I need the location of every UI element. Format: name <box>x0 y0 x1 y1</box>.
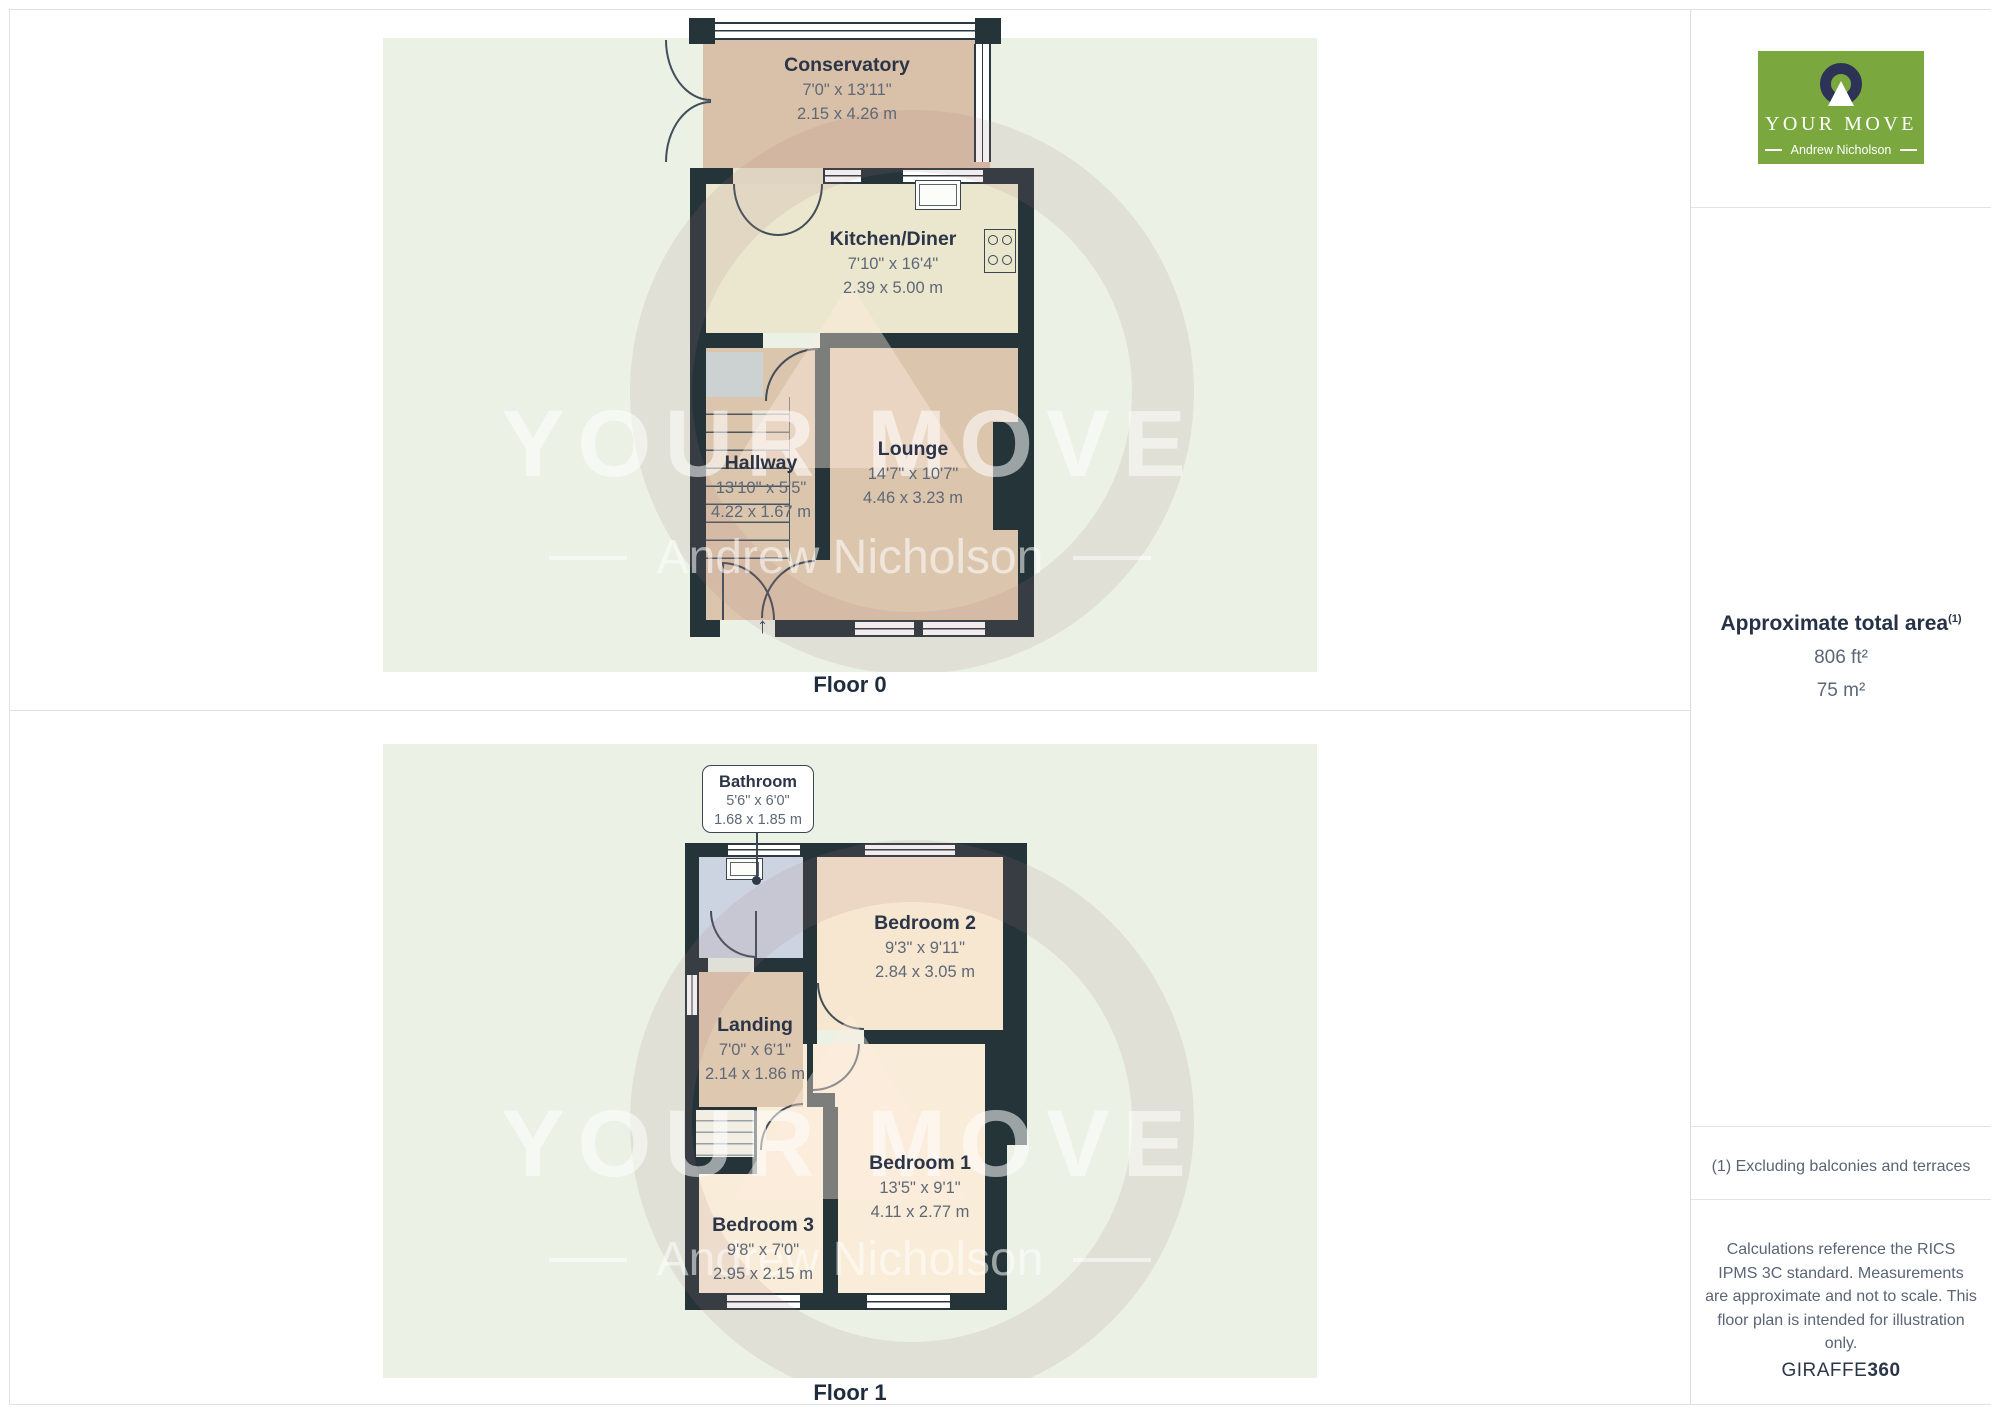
room-label-bedroom-2: Bedroom 2 9'3" x 9'11" 2.84 x 3.05 m <box>874 912 976 983</box>
wall <box>823 1107 838 1293</box>
window <box>974 44 991 162</box>
room-dim-metric: 2.84 x 3.05 m <box>874 961 976 983</box>
room-dim-metric: 1.68 x 1.85 m <box>703 811 813 830</box>
wall <box>706 333 763 348</box>
yourmove-logo: YOUR MOVE Andrew Nicholson <box>1758 51 1924 164</box>
room-dim-metric: 4.22 x 1.67 m <box>711 501 811 523</box>
room-dim-imperial: 14'7" x 10'7" <box>863 463 963 485</box>
wall <box>985 1030 1027 1145</box>
room-dim-imperial: 7'10" x 16'4" <box>830 253 957 275</box>
room-dim-imperial: 9'3" x 9'11" <box>874 937 976 959</box>
stairs <box>693 1107 757 1160</box>
hob-ring <box>988 235 998 245</box>
logo-brand-text: YOUR MOVE <box>1758 113 1924 136</box>
wall <box>803 857 817 1044</box>
room-name: Hallway <box>711 452 811 475</box>
chimney-breast <box>993 422 1018 530</box>
giraffe-text: GIRAFFE <box>1781 1360 1867 1381</box>
total-area-heading-text: Approximate total area <box>1720 612 1948 635</box>
sidebar-divider <box>1691 1126 1991 1127</box>
giraffe360-brand: GIRAFFE360 <box>1691 1360 1991 1382</box>
wall <box>685 1160 757 1174</box>
floor1-label: Floor 1 <box>383 1380 1317 1406</box>
total-area-imperial: 806 ft² <box>1691 647 1991 669</box>
wall <box>950 1293 1007 1310</box>
door-leaf <box>722 562 724 620</box>
wall <box>1003 857 1027 1030</box>
room-name: Bedroom 1 <box>869 1152 971 1175</box>
room-dim-metric: 4.11 x 2.77 m <box>869 1201 971 1223</box>
logo-agent-name: Andrew Nicholson <box>1791 143 1892 157</box>
logo-dash <box>1765 149 1782 151</box>
room-dim-metric: 2.95 x 2.15 m <box>712 1263 814 1285</box>
total-area-heading: Approximate total area(1) <box>1691 612 1991 636</box>
wall <box>800 1293 867 1310</box>
window <box>865 843 955 857</box>
wall <box>820 333 1034 348</box>
window <box>867 1293 950 1310</box>
wall-corner-post <box>975 18 1001 44</box>
wall <box>775 620 855 637</box>
door-arc <box>665 40 711 101</box>
callout-leader <box>756 833 758 878</box>
entrance-arrow-icon: ↑ <box>757 615 768 637</box>
room-dim-imperial: 13'5" x 9'1" <box>869 1177 971 1199</box>
bathroom-callout: Bathroom 5'6" x 6'0" 1.68 x 1.85 m <box>702 765 814 833</box>
wall <box>1018 184 1034 637</box>
logo-triangle-icon <box>1828 81 1854 106</box>
door-threshold <box>733 168 823 184</box>
floor0-panel: ↑ YOUR MOVE Andrew Nicholson Conservator… <box>383 38 1317 672</box>
room-name: Lounge <box>863 438 963 461</box>
wall <box>685 857 699 1310</box>
room-dim-metric: 4.46 x 3.23 m <box>863 487 963 509</box>
wall <box>699 958 708 972</box>
window <box>727 1293 800 1310</box>
wall <box>803 1030 817 1044</box>
room-dim-imperial: 9'8" x 7'0" <box>712 1239 814 1261</box>
floor1-panel: Bathroom 5'6" x 6'0" 1.68 x 1.85 m YOUR … <box>383 744 1317 1378</box>
area-footnote: (1) Excluding balconies and terraces <box>1691 1158 1991 1176</box>
room-name: Bedroom 2 <box>874 912 976 935</box>
hob-ring <box>1002 255 1012 265</box>
floorplan-page: ↑ YOUR MOVE Andrew Nicholson Conservator… <box>0 0 2000 1414</box>
room-name: Conservatory <box>784 54 910 77</box>
total-area-metric: 75 m² <box>1691 680 1991 702</box>
room-dim-metric: 2.14 x 1.86 m <box>705 1063 805 1085</box>
room-label-kitchen-diner: Kitchen/Diner 7'10" x 16'4" 2.39 x 5.00 … <box>830 228 957 299</box>
room-label-landing: Landing 7'0" x 6'1" 2.14 x 1.86 m <box>705 1014 805 1085</box>
disclaimer-text: Calculations reference the RICS IPMS 3C … <box>1705 1238 1977 1356</box>
logo-agent-text: Andrew Nicholson <box>1758 143 1924 157</box>
room-dim-metric: 2.39 x 5.00 m <box>830 277 957 299</box>
window <box>685 975 699 1015</box>
room-label-conservatory: Conservatory 7'0" x 13'11" 2.15 x 4.26 m <box>784 54 910 125</box>
giraffe-360-text: 360 <box>1867 1360 1900 1381</box>
floor0-plan: ↑ <box>383 38 1317 672</box>
window <box>728 843 800 857</box>
room-label-hallway: Hallway 13'10" x 5'5" 4.22 x 1.67 m <box>711 452 811 523</box>
window <box>699 22 991 40</box>
footnote-marker: (1) <box>1948 613 1961 625</box>
hob-ring <box>1002 235 1012 245</box>
room-name: Bedroom 3 <box>712 1214 814 1237</box>
room-label-bedroom-3: Bedroom 3 9'8" x 7'0" 2.95 x 2.15 m <box>712 1214 814 1285</box>
sidebar-divider <box>1691 1199 1991 1200</box>
wall <box>985 1145 1007 1293</box>
wall <box>864 1030 1003 1044</box>
window-mullion <box>914 620 923 637</box>
sink-basin <box>919 184 957 206</box>
sink-basin <box>730 862 759 876</box>
hob-ring <box>988 255 998 265</box>
room-name: Bathroom <box>703 773 813 792</box>
room-dim-metric: 2.15 x 4.26 m <box>784 103 910 125</box>
wall <box>690 184 706 637</box>
room-bedroom-1 <box>860 1044 985 1107</box>
info-sidebar: YOUR MOVE Andrew Nicholson Approximate t… <box>1690 10 1991 1404</box>
wall <box>807 1093 835 1107</box>
wall <box>685 1293 727 1310</box>
door-arc <box>665 101 711 162</box>
floor1-plan: Bathroom 5'6" x 6'0" 1.68 x 1.85 m <box>383 744 1317 1378</box>
wall <box>690 620 720 637</box>
floor0-label: Floor 0 <box>383 672 1317 698</box>
logo-dash <box>1900 149 1917 151</box>
room-dim-imperial: 7'0" x 13'11" <box>784 79 910 101</box>
room-dim-imperial: 7'0" x 6'1" <box>705 1039 805 1061</box>
wall <box>985 620 1034 637</box>
stair-landing <box>706 352 763 397</box>
room-label-lounge: Lounge 14'7" x 10'7" 4.46 x 3.23 m <box>863 438 963 509</box>
floor-section-divider <box>10 710 1690 711</box>
room-name: Kitchen/Diner <box>830 228 957 251</box>
room-name: Landing <box>705 1014 805 1037</box>
room-dim-imperial: 13'10" x 5'5" <box>711 477 811 499</box>
callout-dot <box>752 876 761 885</box>
hob-icon <box>984 229 1016 273</box>
room-dim-imperial: 5'6" x 6'0" <box>703 792 813 811</box>
door-leaf <box>755 911 757 958</box>
sink-icon <box>915 180 961 210</box>
wall <box>754 958 803 972</box>
room-label-bedroom-1: Bedroom 1 13'5" x 9'1" 4.11 x 2.77 m <box>869 1152 971 1223</box>
total-area-block: Approximate total area(1) 806 ft² 75 m² <box>1691 612 1991 702</box>
sidebar-divider <box>1691 207 1991 208</box>
window <box>825 168 861 184</box>
